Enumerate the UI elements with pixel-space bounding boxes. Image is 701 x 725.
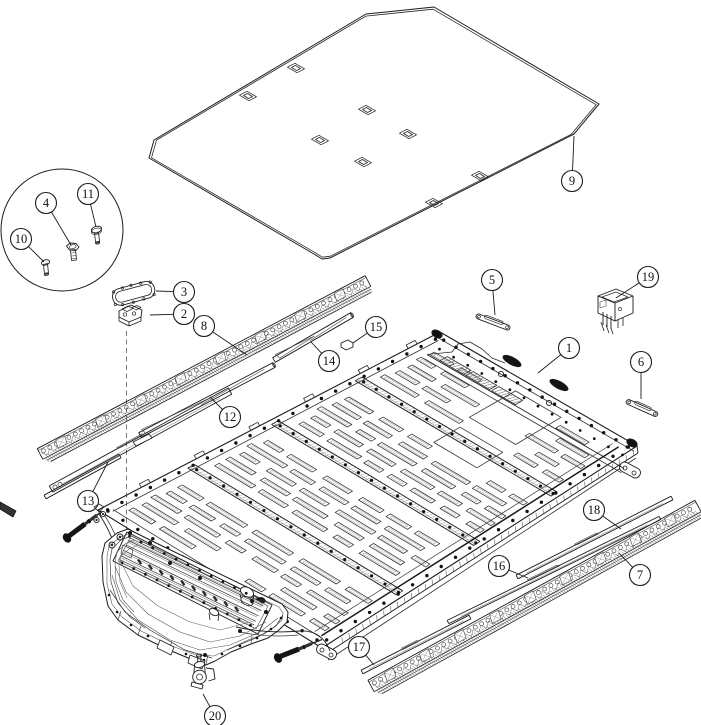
svg-text:18: 18 xyxy=(588,503,601,517)
svg-text:15: 15 xyxy=(370,320,383,334)
svg-text:7: 7 xyxy=(637,568,643,582)
svg-text:20: 20 xyxy=(209,709,222,723)
svg-text:6: 6 xyxy=(638,355,644,369)
svg-text:3: 3 xyxy=(181,285,187,299)
svg-text:8: 8 xyxy=(201,319,207,333)
svg-text:13: 13 xyxy=(82,494,95,508)
svg-text:2: 2 xyxy=(181,307,187,321)
svg-text:12: 12 xyxy=(224,410,237,424)
svg-text:11: 11 xyxy=(82,187,94,201)
svg-text:4: 4 xyxy=(43,196,50,210)
svg-text:17: 17 xyxy=(353,640,366,654)
svg-text:16: 16 xyxy=(493,559,506,573)
svg-text:14: 14 xyxy=(323,354,336,368)
svg-text:1: 1 xyxy=(566,341,572,355)
svg-text:5: 5 xyxy=(489,273,495,287)
svg-text:10: 10 xyxy=(15,232,28,246)
svg-text:19: 19 xyxy=(642,270,655,284)
svg-text:9: 9 xyxy=(569,174,575,188)
